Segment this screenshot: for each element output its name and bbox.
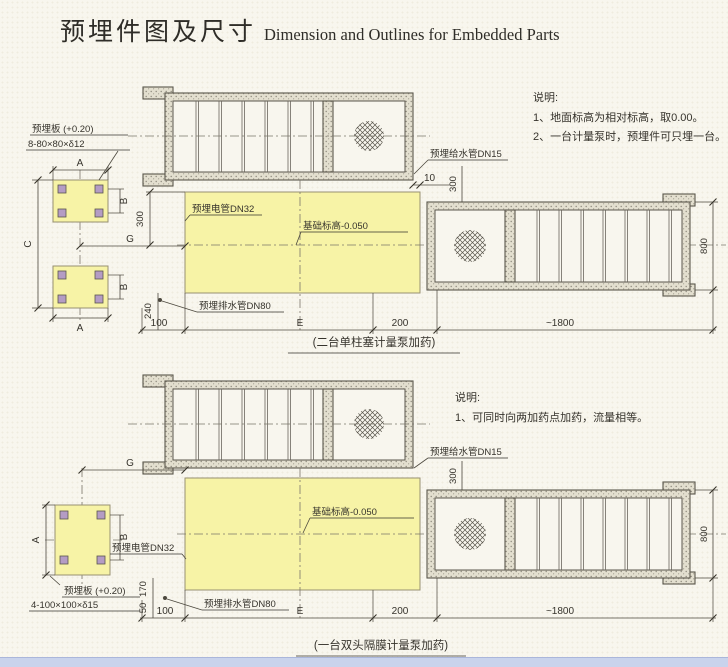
dim-a-top: A [77, 158, 84, 169]
drain-label: 预埋排水管DN80 [204, 598, 276, 610]
dim-a-bottom: A [77, 323, 84, 334]
pump-plan-2 [427, 482, 695, 584]
drain-hatch-icon [454, 230, 486, 262]
caption-text: (二台单柱塞计量泵加药) [313, 335, 436, 349]
dim-170: 170 [138, 581, 149, 597]
plate-callout-1: 预埋板 (+0.20) 8-80×80×δ12 [26, 123, 130, 180]
notes-item: 2、一台计量泵时，预埋件可只埋一台。 [533, 129, 726, 143]
caption-2: (一台双头隔膜计量泵加药) [296, 638, 466, 656]
water-label: 预埋给水管DN15 [430, 446, 502, 458]
drawing-1: A B B A C [23, 87, 726, 353]
notes-item: 1、可同时向两加药点加药，流量相等。 [455, 410, 648, 424]
dim-100: 100 [157, 606, 174, 617]
level-label: 基础标高-0.050 [303, 220, 368, 232]
dim-240: 240 [143, 303, 154, 319]
dim-g: G [126, 234, 134, 245]
dim-300-right: 300 [448, 468, 459, 484]
notes-item: 1、地面标高为相对标高，取0.00。 [533, 110, 704, 124]
dim-10: 10 [424, 173, 436, 184]
drawing-canvas: A B B A C [0, 0, 728, 667]
notes-1: 说明: 1、地面标高为相对标高，取0.00。 2、一台计量泵时，预埋件可只埋一台… [533, 90, 726, 143]
dim-800: 800 [699, 238, 710, 254]
water-callout-2: 预埋给水管DN15 300 [414, 446, 508, 490]
drain-callout-1: 预埋排水管DN80 [158, 298, 284, 312]
grating-plan-1 [128, 87, 430, 186]
dim-800-group-1: 800 [695, 199, 718, 294]
dim-200: 200 [392, 606, 409, 617]
drawing-sheet: 预埋件图及尺寸Dimension and Outlines for Embedd… [0, 0, 728, 667]
dim-1800: ~1800 [546, 318, 575, 329]
caption-text: (一台双头隔膜计量泵加药) [314, 638, 448, 652]
dim-200: 200 [392, 318, 409, 329]
caption-1: (二台单柱塞计量泵加药) [288, 335, 460, 353]
notes-title: 说明: [533, 90, 558, 104]
dim-a: A [31, 536, 42, 543]
conduit-label: 预埋电管DN32 [112, 542, 174, 554]
drain-label: 预埋排水管DN80 [199, 300, 271, 312]
dim-g: G [126, 458, 134, 469]
dim-800: 800 [699, 526, 710, 542]
dim-b-plate1: B [119, 197, 130, 204]
dim-300-left-group-1: 300 [135, 189, 185, 249]
dim-e: E [297, 606, 304, 617]
drain-callout-2: 预埋排水管DN80 [163, 596, 289, 610]
dim-50: 50 [138, 603, 149, 614]
dim-300-left: 300 [135, 211, 146, 227]
dim-c: C [23, 240, 34, 247]
level-label: 基础标高-0.050 [312, 506, 377, 518]
water-callout-1: 预埋给水管DN15 300 10 [410, 148, 509, 202]
notes-2: 说明: 1、可同时向两加药点加药，流量相等。 [455, 390, 648, 424]
conduit-callout-2: 预埋电管DN32 [110, 542, 186, 559]
notes-title: 说明: [455, 390, 480, 404]
dim-800-group-2: 800 [695, 487, 718, 582]
dim-b-plate2: B [119, 283, 130, 290]
dim-e: E [297, 318, 304, 329]
drain-hatch-icon [454, 518, 486, 550]
window-edge-strip [0, 657, 728, 667]
plate-label: 预埋板 (+0.20) [64, 585, 126, 597]
dim-1800: ~1800 [546, 606, 575, 617]
plate-spec-label: 4-100×100×δ15 [31, 600, 98, 611]
conduit-label: 预埋电管DN32 [192, 203, 254, 215]
grating-plan-2 [128, 375, 430, 474]
pump-plan-1 [427, 194, 695, 296]
dim-b: B [119, 533, 130, 540]
anchor-plate-2: A B G [31, 458, 189, 588]
plate-spec-label: 8-80×80×δ12 [28, 139, 85, 150]
drawing-2: A B G 预埋板 (+0.20) 4-100×100×δ15 预埋电 [29, 375, 726, 656]
plate-callout-2: 预埋板 (+0.20) 4-100×100×δ15 [29, 576, 140, 611]
plate-label: 预埋板 (+0.20) [32, 123, 94, 135]
water-label: 预埋给水管DN15 [430, 148, 502, 160]
dim-300-right: 300 [448, 176, 459, 192]
